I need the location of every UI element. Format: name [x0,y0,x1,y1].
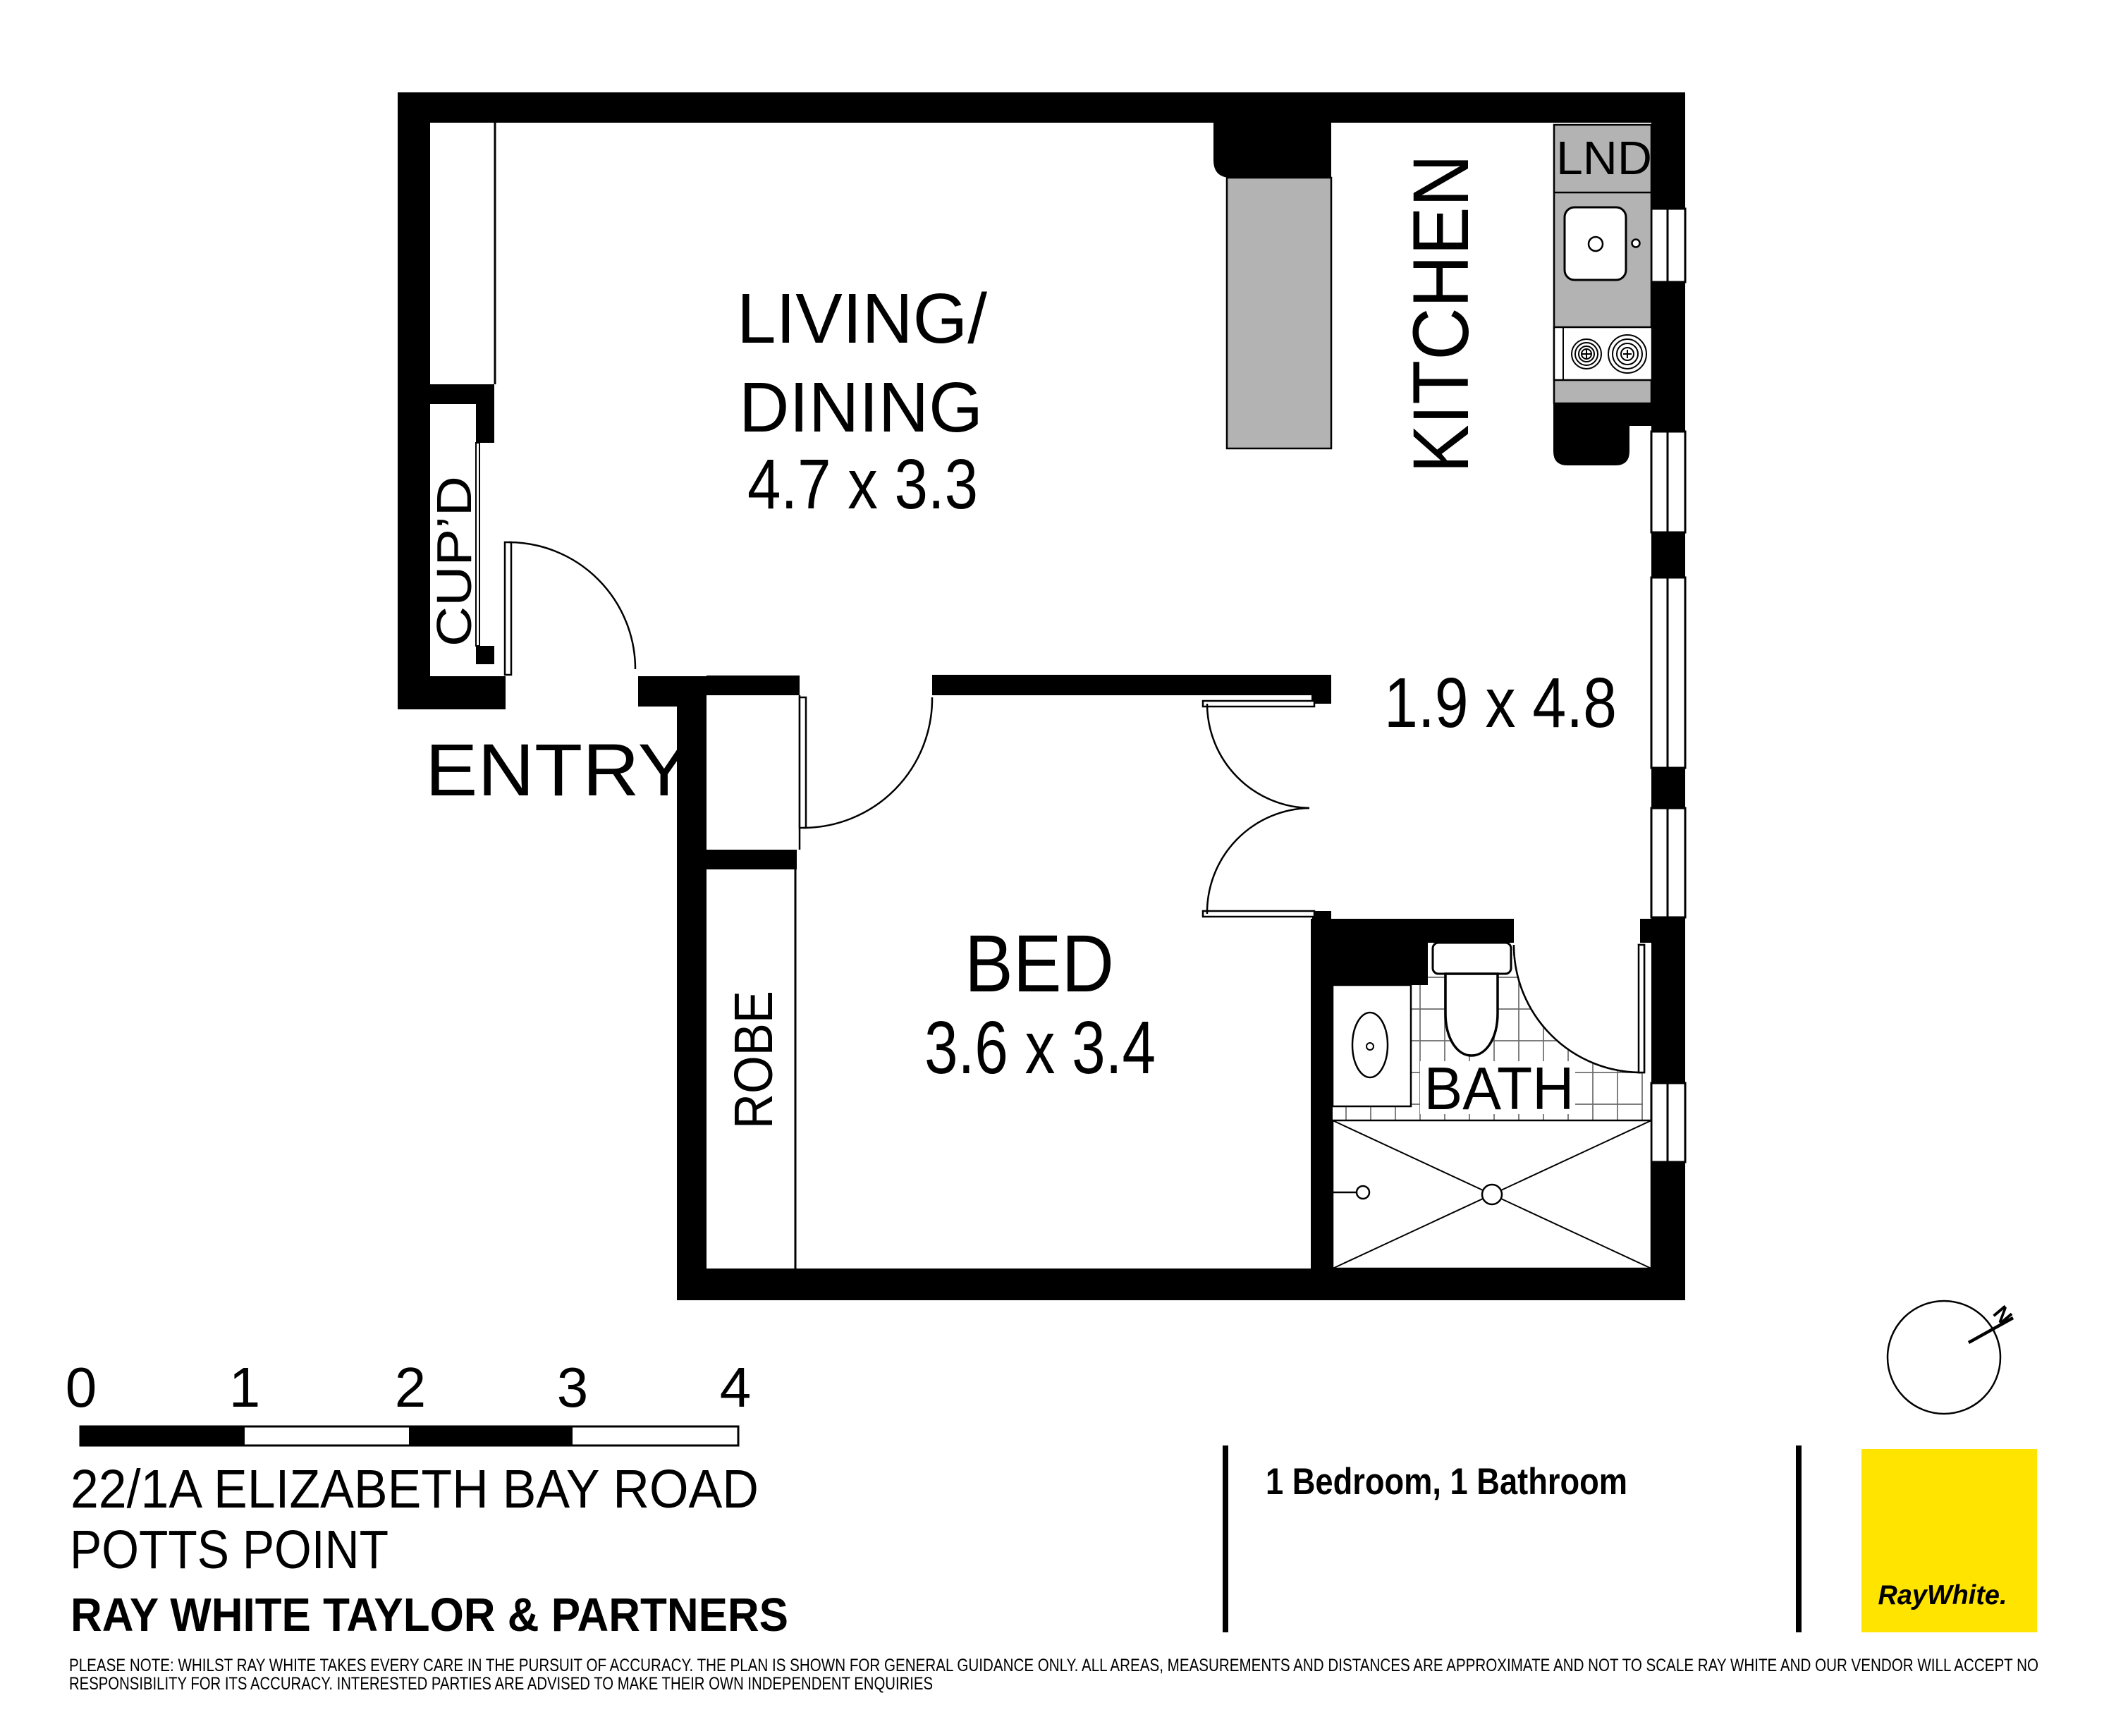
svg-text:2: 2 [395,1356,427,1419]
svg-text:PLEASE NOTE: WHILST RAY WHITE: PLEASE NOTE: WHILST RAY WHITE TAKES EVER… [69,1656,2038,1675]
svg-text:BATH: BATH [1424,1056,1574,1123]
svg-text:KITCHEN: KITCHEN [1397,154,1485,473]
svg-text:3: 3 [557,1356,589,1419]
svg-text:LND: LND [1556,132,1652,185]
svg-text:RayWhite.: RayWhite. [1878,1580,2007,1610]
svg-text:4: 4 [720,1356,752,1419]
svg-text:LIVING/: LIVING/ [737,279,987,358]
svg-text:RAY WHITE TAYLOR & PARTNERS: RAY WHITE TAYLOR & PARTNERS [71,1589,788,1642]
svg-text:22/1A ELIZABETH BAY ROAD: 22/1A ELIZABETH BAY ROAD [71,1459,759,1520]
svg-text:1.9 x 4.8: 1.9 x 4.8 [1384,664,1617,742]
svg-text:1: 1 [229,1356,261,1419]
svg-text:BED: BED [965,919,1114,1009]
svg-text:3.6 x 3.4: 3.6 x 3.4 [924,1006,1156,1089]
svg-text:4.7 x 3.3: 4.7 x 3.3 [747,445,978,524]
svg-text:ROBE: ROBE [723,991,784,1129]
svg-text:DINING: DINING [739,368,983,447]
svg-text:CUP’D: CUP’D [427,476,482,647]
svg-text:0: 0 [66,1356,97,1419]
svg-text:1 Bedroom, 1 Bathroom: 1 Bedroom, 1 Bathroom [1266,1461,1627,1503]
svg-text:POTTS POINT: POTTS POINT [70,1520,389,1580]
svg-text:RESPONSIBILITY FOR ITS ACCURAC: RESPONSIBILITY FOR ITS ACCURACY. INTERES… [69,1674,933,1694]
svg-text:ENTRY: ENTRY [425,729,690,812]
